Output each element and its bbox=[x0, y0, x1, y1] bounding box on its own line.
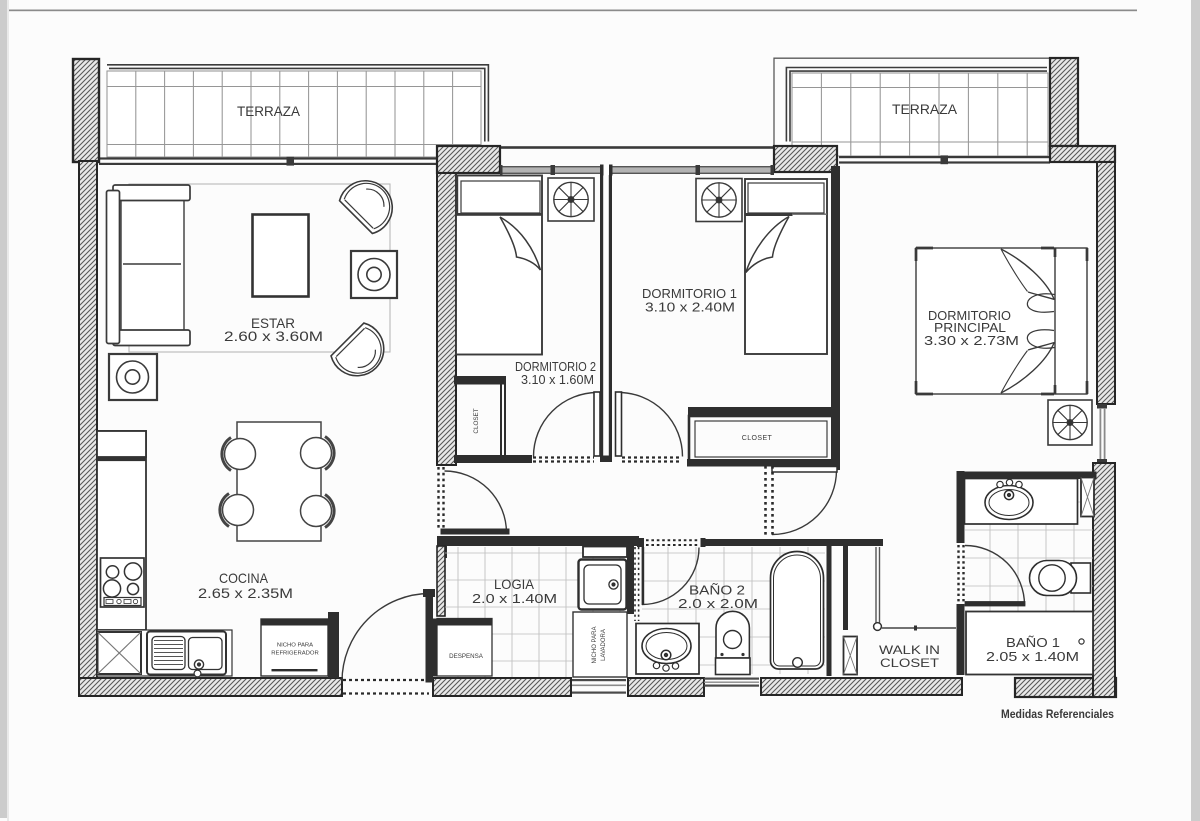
svg-text:NICHO PARA: NICHO PARA bbox=[277, 643, 313, 649]
svg-text:2.0 x 2.0M: 2.0 x 2.0M bbox=[678, 596, 758, 611]
svg-text:BAÑO 1: BAÑO 1 bbox=[1006, 635, 1060, 650]
svg-text:DESPENSA: DESPENSA bbox=[449, 653, 484, 660]
svg-text:CLOSET: CLOSET bbox=[742, 435, 773, 442]
svg-text:CLOSET: CLOSET bbox=[880, 656, 940, 670]
svg-text:TERRAZA: TERRAZA bbox=[237, 104, 300, 119]
svg-text:LAVADORA: LAVADORA bbox=[601, 629, 607, 661]
svg-text:3.10 x 1.60M: 3.10 x 1.60M bbox=[521, 372, 594, 387]
svg-text:Medidas Referenciales: Medidas Referenciales bbox=[1001, 708, 1114, 721]
svg-text:3.30 x 2.73M: 3.30 x 2.73M bbox=[924, 333, 1019, 348]
svg-text:REFRIGERADOR: REFRIGERADOR bbox=[271, 651, 318, 657]
svg-text:WALK IN: WALK IN bbox=[879, 643, 940, 657]
svg-text:TERRAZA: TERRAZA bbox=[892, 102, 957, 117]
svg-text:NICHO PARA: NICHO PARA bbox=[592, 627, 598, 664]
svg-text:COCINA: COCINA bbox=[219, 570, 269, 586]
svg-text:2.65 x 2.35M: 2.65 x 2.35M bbox=[198, 586, 293, 601]
svg-text:2.60 x 3.60M: 2.60 x 3.60M bbox=[224, 329, 323, 344]
svg-text:3.10 x 2.40M: 3.10 x 2.40M bbox=[645, 300, 735, 315]
svg-text:LOGIA: LOGIA bbox=[494, 577, 535, 592]
svg-text:2.0 x 1.40M: 2.0 x 1.40M bbox=[472, 591, 557, 606]
svg-text:CLOSET: CLOSET bbox=[473, 408, 480, 433]
svg-text:2.05 x 1.40M: 2.05 x 1.40M bbox=[986, 649, 1079, 664]
